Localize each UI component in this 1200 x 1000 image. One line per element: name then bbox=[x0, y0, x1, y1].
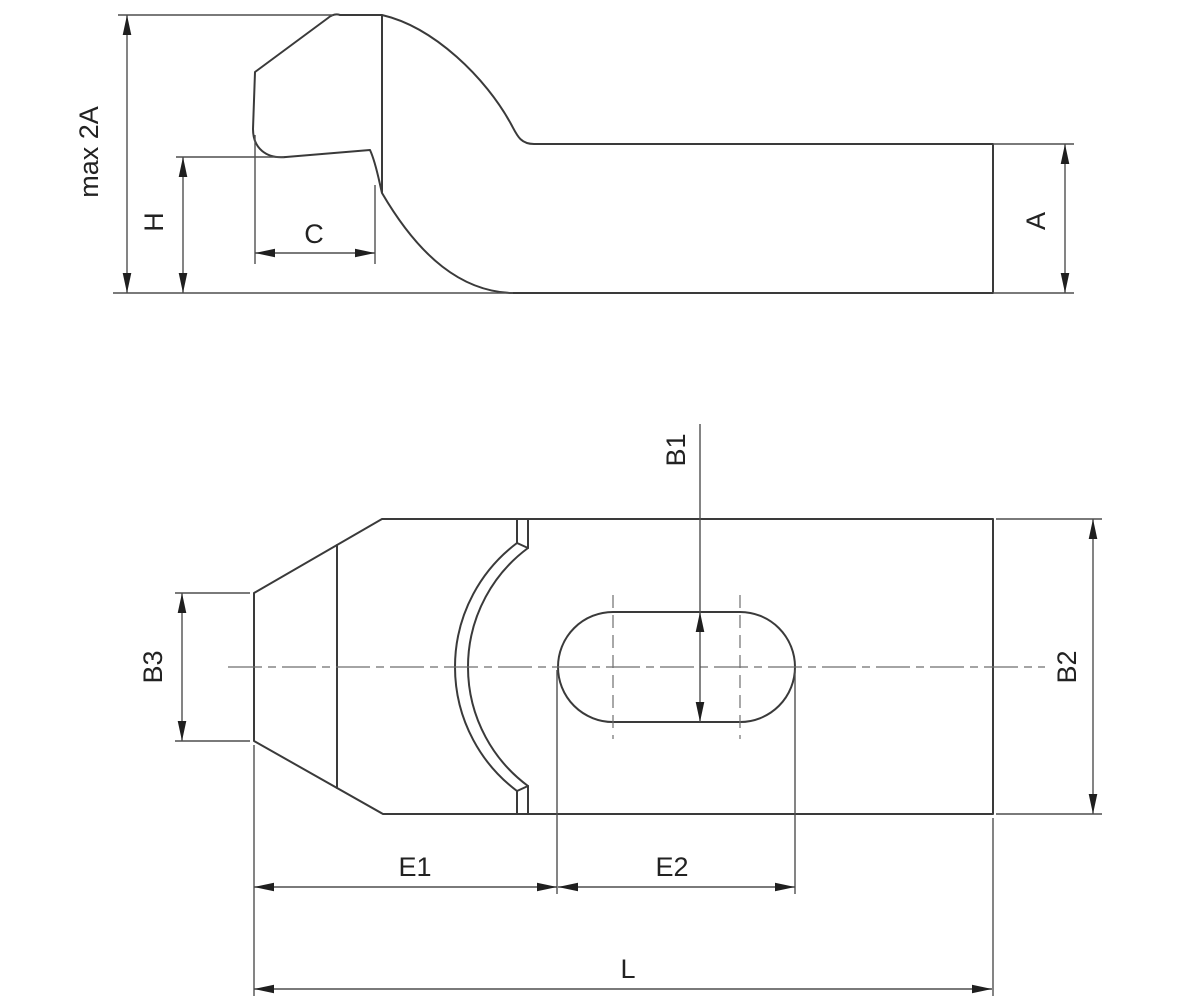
label-e1: E1 bbox=[398, 852, 431, 882]
technical-drawing: max 2A H C A bbox=[0, 0, 1200, 1000]
side-view-labels: max 2A H C A bbox=[74, 106, 1051, 249]
label-b1: B1 bbox=[661, 433, 691, 466]
plan-view-centerlines bbox=[228, 595, 1045, 739]
curved-slot-top-cap bbox=[517, 543, 528, 548]
label-b2: B2 bbox=[1052, 650, 1082, 683]
curved-slot-bottom-cap bbox=[517, 786, 528, 791]
drawing-canvas: max 2A H C A bbox=[0, 0, 1200, 1000]
label-b3: B3 bbox=[138, 650, 168, 683]
side-view bbox=[253, 14, 993, 293]
side-view-outline bbox=[253, 14, 993, 293]
label-a: A bbox=[1021, 212, 1051, 230]
label-l: L bbox=[620, 954, 635, 984]
label-c: C bbox=[304, 219, 324, 249]
side-view-dimensions bbox=[113, 15, 1074, 293]
label-e2: E2 bbox=[655, 852, 688, 882]
label-h: H bbox=[139, 212, 169, 232]
label-max-2a: max 2A bbox=[74, 106, 104, 198]
plan-view-dimensions bbox=[175, 424, 1102, 996]
plan-view-labels: B1 B2 B3 E1 E2 L bbox=[138, 433, 1082, 984]
